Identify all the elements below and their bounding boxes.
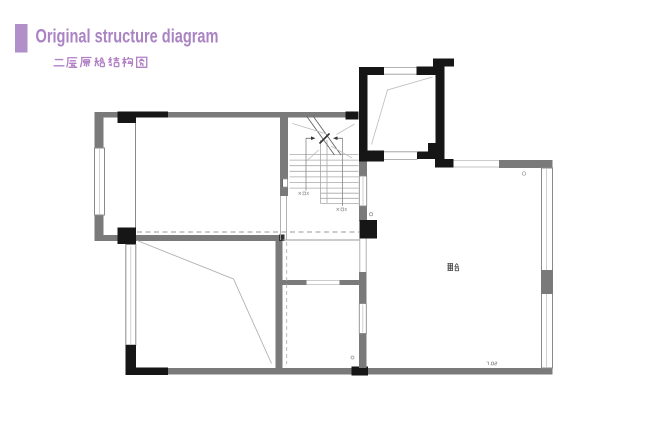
svg-text:Original structure diagram: Original structure diagram: [36, 27, 219, 48]
